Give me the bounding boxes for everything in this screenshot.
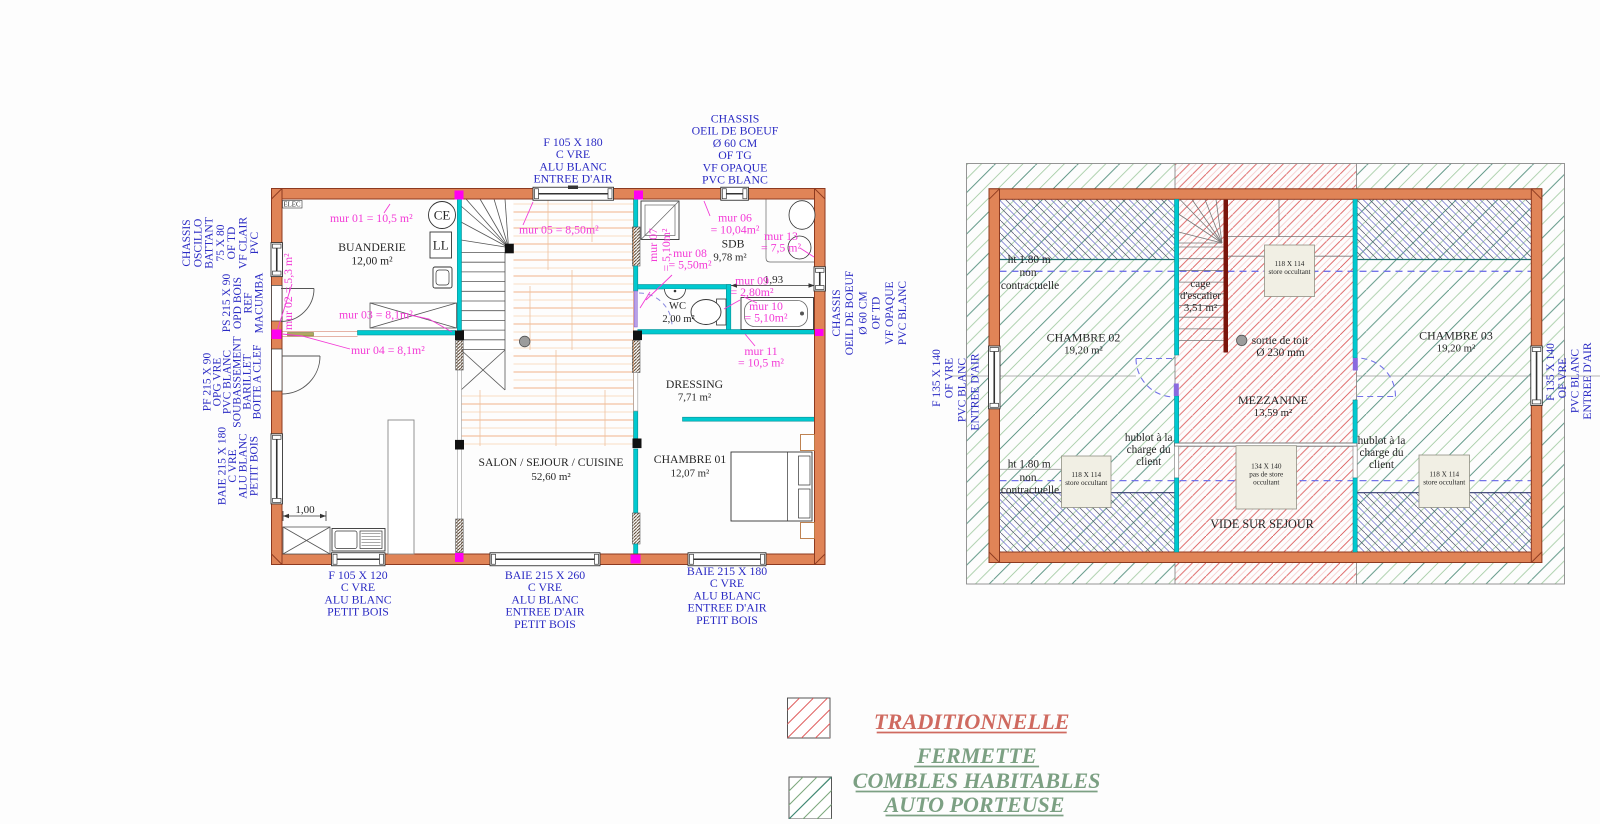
- svg-text:OF VRE: OF VRE: [1557, 358, 1569, 398]
- svg-text:CHAMBRE 01: CHAMBRE 01: [654, 453, 727, 466]
- svg-text:BATTANT: BATTANT: [204, 217, 216, 268]
- svg-text:12,00 m²: 12,00 m²: [351, 256, 393, 268]
- svg-text:19,20 m²: 19,20 m²: [1437, 343, 1476, 355]
- svg-text:d'escalier: d'escalier: [1180, 290, 1221, 302]
- svg-text:pas de store: pas de store: [1249, 471, 1283, 479]
- svg-text:Ø 230 mm: Ø 230 mm: [1256, 347, 1305, 359]
- svg-text:client: client: [1136, 456, 1162, 468]
- svg-text:mur 03 = 8,1m²: mur 03 = 8,1m²: [339, 308, 413, 322]
- svg-text:COMBLES HABITABLES: COMBLES HABITABLES: [853, 768, 1101, 793]
- svg-text:contractuelle: contractuelle: [1001, 280, 1059, 292]
- svg-text:PVC: PVC: [249, 231, 261, 254]
- svg-text:Ø 60 CM: Ø 60 CM: [857, 291, 869, 334]
- svg-text:non: non: [1020, 472, 1037, 484]
- svg-text:CHAMBRE 03: CHAMBRE 03: [1419, 329, 1493, 343]
- svg-text:9,78 m²: 9,78 m²: [713, 252, 746, 264]
- svg-text:BUANDERIE: BUANDERIE: [338, 241, 406, 254]
- svg-text:mur 07: mur 07: [646, 228, 660, 262]
- svg-text:mur 05 = 8,50m²: mur 05 = 8,50m²: [519, 223, 599, 237]
- svg-text:OSCILLO: OSCILLO: [192, 219, 204, 268]
- svg-text:1,00: 1,00: [295, 504, 315, 516]
- svg-text:= 10,04m²: = 10,04m²: [711, 223, 760, 237]
- svg-text:2,00 m²: 2,00 m²: [662, 314, 694, 325]
- svg-text:CHASSIS: CHASSIS: [181, 219, 193, 266]
- svg-text:118 X 114: 118 X 114: [1429, 470, 1459, 478]
- svg-text:ENTREE D'AIR: ENTREE D'AIR: [1582, 342, 1594, 419]
- svg-text:118 X 114: 118 X 114: [1275, 260, 1305, 268]
- svg-text:OF TD: OF TD: [871, 297, 883, 330]
- svg-text:sortie de toit: sortie de toit: [1252, 335, 1309, 347]
- svg-text:PVC BLANC: PVC BLANC: [702, 173, 768, 187]
- svg-text:134 X 140: 134 X 140: [1251, 463, 1282, 471]
- svg-text:store occultant: store occultant: [1065, 479, 1107, 487]
- svg-text:PVC BLANC: PVC BLANC: [1570, 349, 1582, 414]
- svg-text:13,59 m²: 13,59 m²: [1254, 407, 1293, 419]
- svg-text:contractuelle: contractuelle: [1001, 485, 1059, 497]
- svg-text:charge du: charge du: [1127, 444, 1171, 456]
- svg-text:hublot à la: hublot à la: [1125, 432, 1173, 444]
- svg-text:ht 1.80 m: ht 1.80 m: [1008, 254, 1051, 266]
- svg-text:store occultant: store occultant: [1423, 478, 1465, 486]
- svg-text:PETIT BOIS: PETIT BOIS: [248, 436, 260, 496]
- svg-text:VF CLAIR: VF CLAIR: [238, 217, 250, 269]
- svg-text:= 5,50m²: = 5,50m²: [669, 258, 712, 272]
- svg-text:LL: LL: [433, 238, 449, 253]
- svg-text:75 X 80: 75 X 80: [215, 224, 227, 261]
- svg-text:52,60 m²: 52,60 m²: [531, 471, 571, 483]
- svg-text:12,07 m²: 12,07 m²: [671, 468, 710, 480]
- svg-text:WC: WC: [669, 301, 686, 312]
- svg-text:TRADITIONNELLE: TRADITIONNELLE: [874, 709, 1070, 734]
- svg-text:SDB: SDB: [722, 238, 745, 251]
- svg-text:FERMETTE: FERMETTE: [916, 743, 1037, 768]
- svg-text:hublot à la: hublot à la: [1358, 435, 1406, 447]
- svg-text:118 X 114: 118 X 114: [1071, 471, 1101, 479]
- svg-text:= 7,5 m²: = 7,5 m²: [761, 241, 801, 255]
- svg-text:BOITE A CLEF: BOITE A CLEF: [252, 345, 264, 420]
- svg-text:= 2,80m²: = 2,80m²: [731, 285, 774, 299]
- svg-text:= 5,10m²: = 5,10m²: [745, 311, 788, 325]
- svg-text:occultant: occultant: [1253, 479, 1279, 487]
- svg-text:MEZZANINE: MEZZANINE: [1238, 393, 1308, 407]
- svg-text:PETIT BOIS: PETIT BOIS: [327, 605, 389, 619]
- svg-text:PVC BLANC: PVC BLANC: [957, 358, 969, 423]
- svg-text:3,51 m²: 3,51 m²: [1184, 302, 1217, 314]
- svg-text:mur 01 = 10,5 m²: mur 01 = 10,5 m²: [330, 211, 413, 225]
- svg-text:CHASSIS: CHASSIS: [831, 289, 843, 336]
- svg-text:mur 02 = 5,3 m²: mur 02 = 5,3 m²: [281, 253, 295, 330]
- svg-text:mur 04 = 8,1m²: mur 04 = 8,1m²: [351, 343, 425, 357]
- svg-text:ELEC: ELEC: [284, 202, 301, 209]
- svg-text:7,71 m²: 7,71 m²: [678, 392, 711, 404]
- svg-text:ht 1.80 m: ht 1.80 m: [1008, 459, 1051, 471]
- svg-text:SALON / SEJOUR / CUISINE: SALON / SEJOUR / CUISINE: [479, 456, 624, 469]
- svg-text:VIDE SUR SEJOUR: VIDE SUR SEJOUR: [1210, 517, 1314, 531]
- svg-text:MACUMBA: MACUMBA: [253, 272, 265, 333]
- svg-text:non: non: [1020, 267, 1037, 279]
- svg-text:client: client: [1369, 459, 1395, 471]
- svg-text:VF OPAQUE: VF OPAQUE: [884, 281, 896, 344]
- svg-text:ENTREE D'AIR: ENTREE D'AIR: [533, 172, 612, 186]
- svg-text:OEIL DE BOEUF: OEIL DE BOEUF: [844, 271, 856, 356]
- svg-text:PETIT BOIS: PETIT BOIS: [696, 613, 758, 627]
- svg-text:cage: cage: [1190, 278, 1210, 290]
- svg-text:F 135 X 140: F 135 X 140: [931, 349, 943, 407]
- svg-text:CE: CE: [434, 208, 451, 223]
- svg-text:PETIT BOIS: PETIT BOIS: [514, 617, 576, 631]
- svg-text:AUTO PORTEUSE: AUTO PORTEUSE: [883, 792, 1065, 817]
- svg-text:PVC BLANC: PVC BLANC: [897, 281, 909, 346]
- svg-text:ENTREE D'AIR: ENTREE D'AIR: [970, 353, 982, 430]
- svg-text:F 135 X 140: F 135 X 140: [1545, 343, 1557, 401]
- svg-text:OF TD: OF TD: [226, 227, 238, 260]
- svg-text:store occultant: store occultant: [1268, 268, 1310, 276]
- svg-text:19,20 m²: 19,20 m²: [1064, 345, 1103, 357]
- svg-text:CHAMBRE 02: CHAMBRE 02: [1047, 331, 1121, 345]
- svg-text:charge du: charge du: [1359, 447, 1403, 459]
- svg-text:OF VRE: OF VRE: [944, 358, 956, 398]
- svg-text:DRESSING: DRESSING: [666, 378, 724, 391]
- svg-text:= 10,5 m²: = 10,5 m²: [738, 356, 784, 370]
